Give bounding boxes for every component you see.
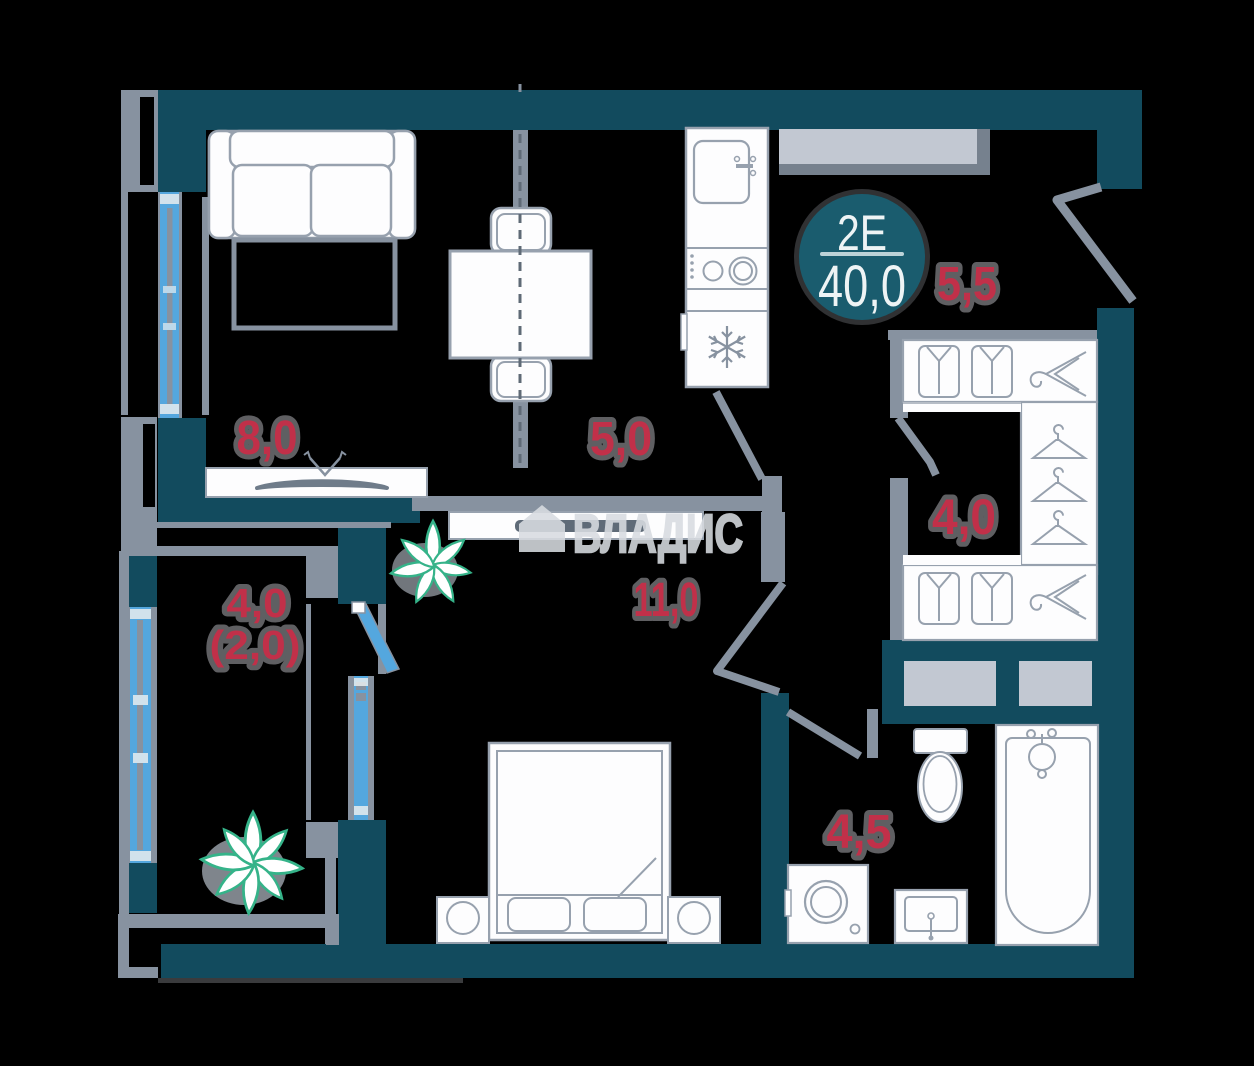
- svg-text:4,5: 4,5: [827, 806, 892, 859]
- svg-text:4,0: 4,0: [227, 580, 288, 626]
- svg-text:5,5: 5,5: [937, 258, 997, 311]
- svg-text:2E: 2E: [837, 205, 887, 261]
- svg-text:5,0: 5,0: [590, 413, 652, 466]
- svg-text:4,0: 4,0: [932, 489, 996, 545]
- svg-text:(2,0): (2,0): [210, 622, 301, 668]
- svg-text:11,0: 11,0: [634, 574, 699, 627]
- svg-text:8,0: 8,0: [237, 412, 298, 465]
- svg-text:40,0: 40,0: [818, 254, 906, 319]
- svg-text:ВЛАДИС: ВЛАДИС: [573, 504, 743, 564]
